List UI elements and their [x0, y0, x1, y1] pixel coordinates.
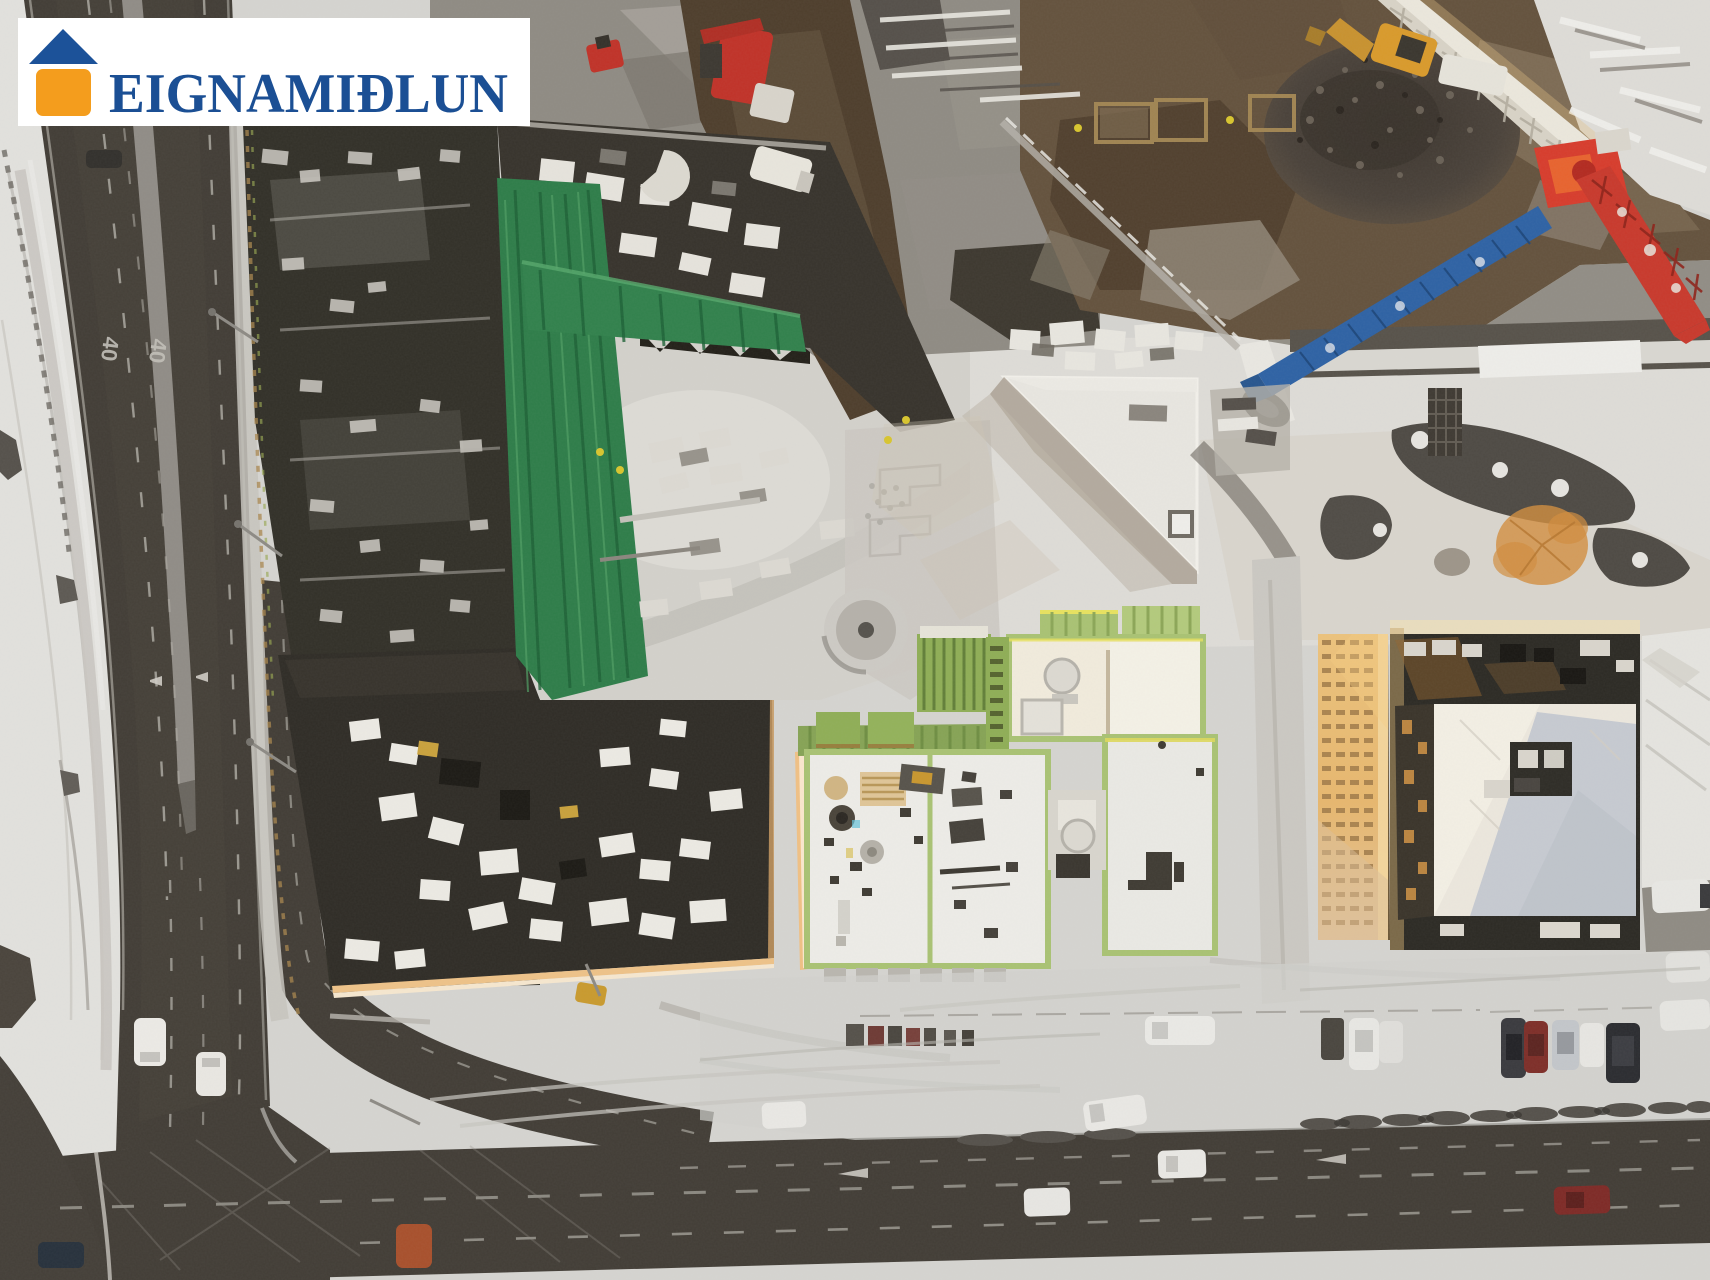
svg-text:EIGNAMIÐLUN: EIGNAMIÐLUN	[109, 63, 508, 125]
